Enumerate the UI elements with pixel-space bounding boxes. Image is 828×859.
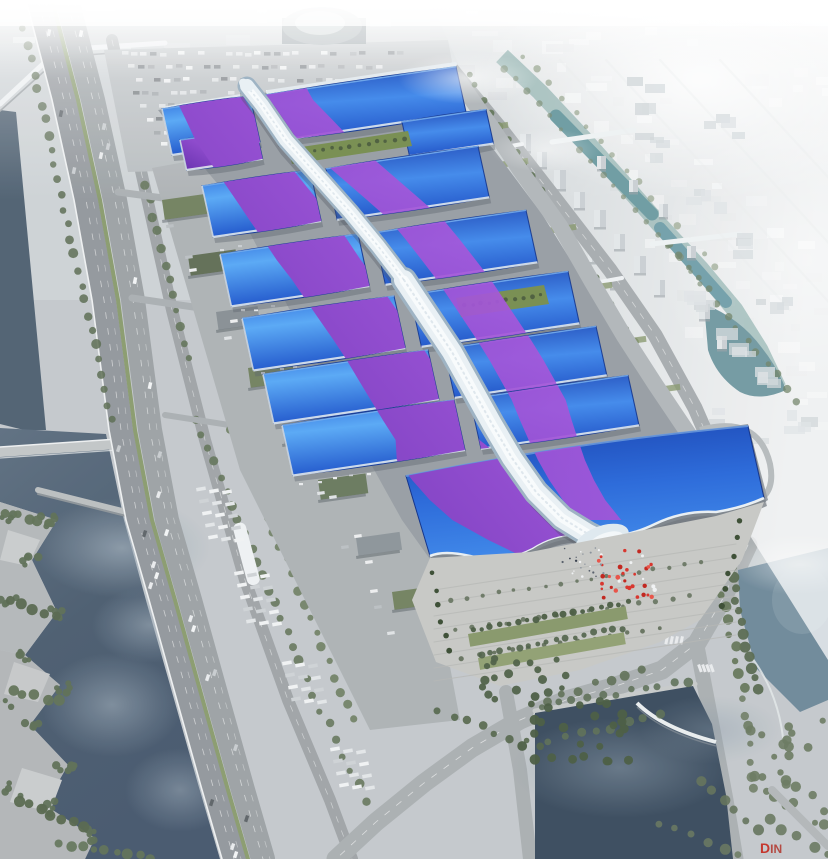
svg-text:DIN: DIN [760, 840, 782, 856]
